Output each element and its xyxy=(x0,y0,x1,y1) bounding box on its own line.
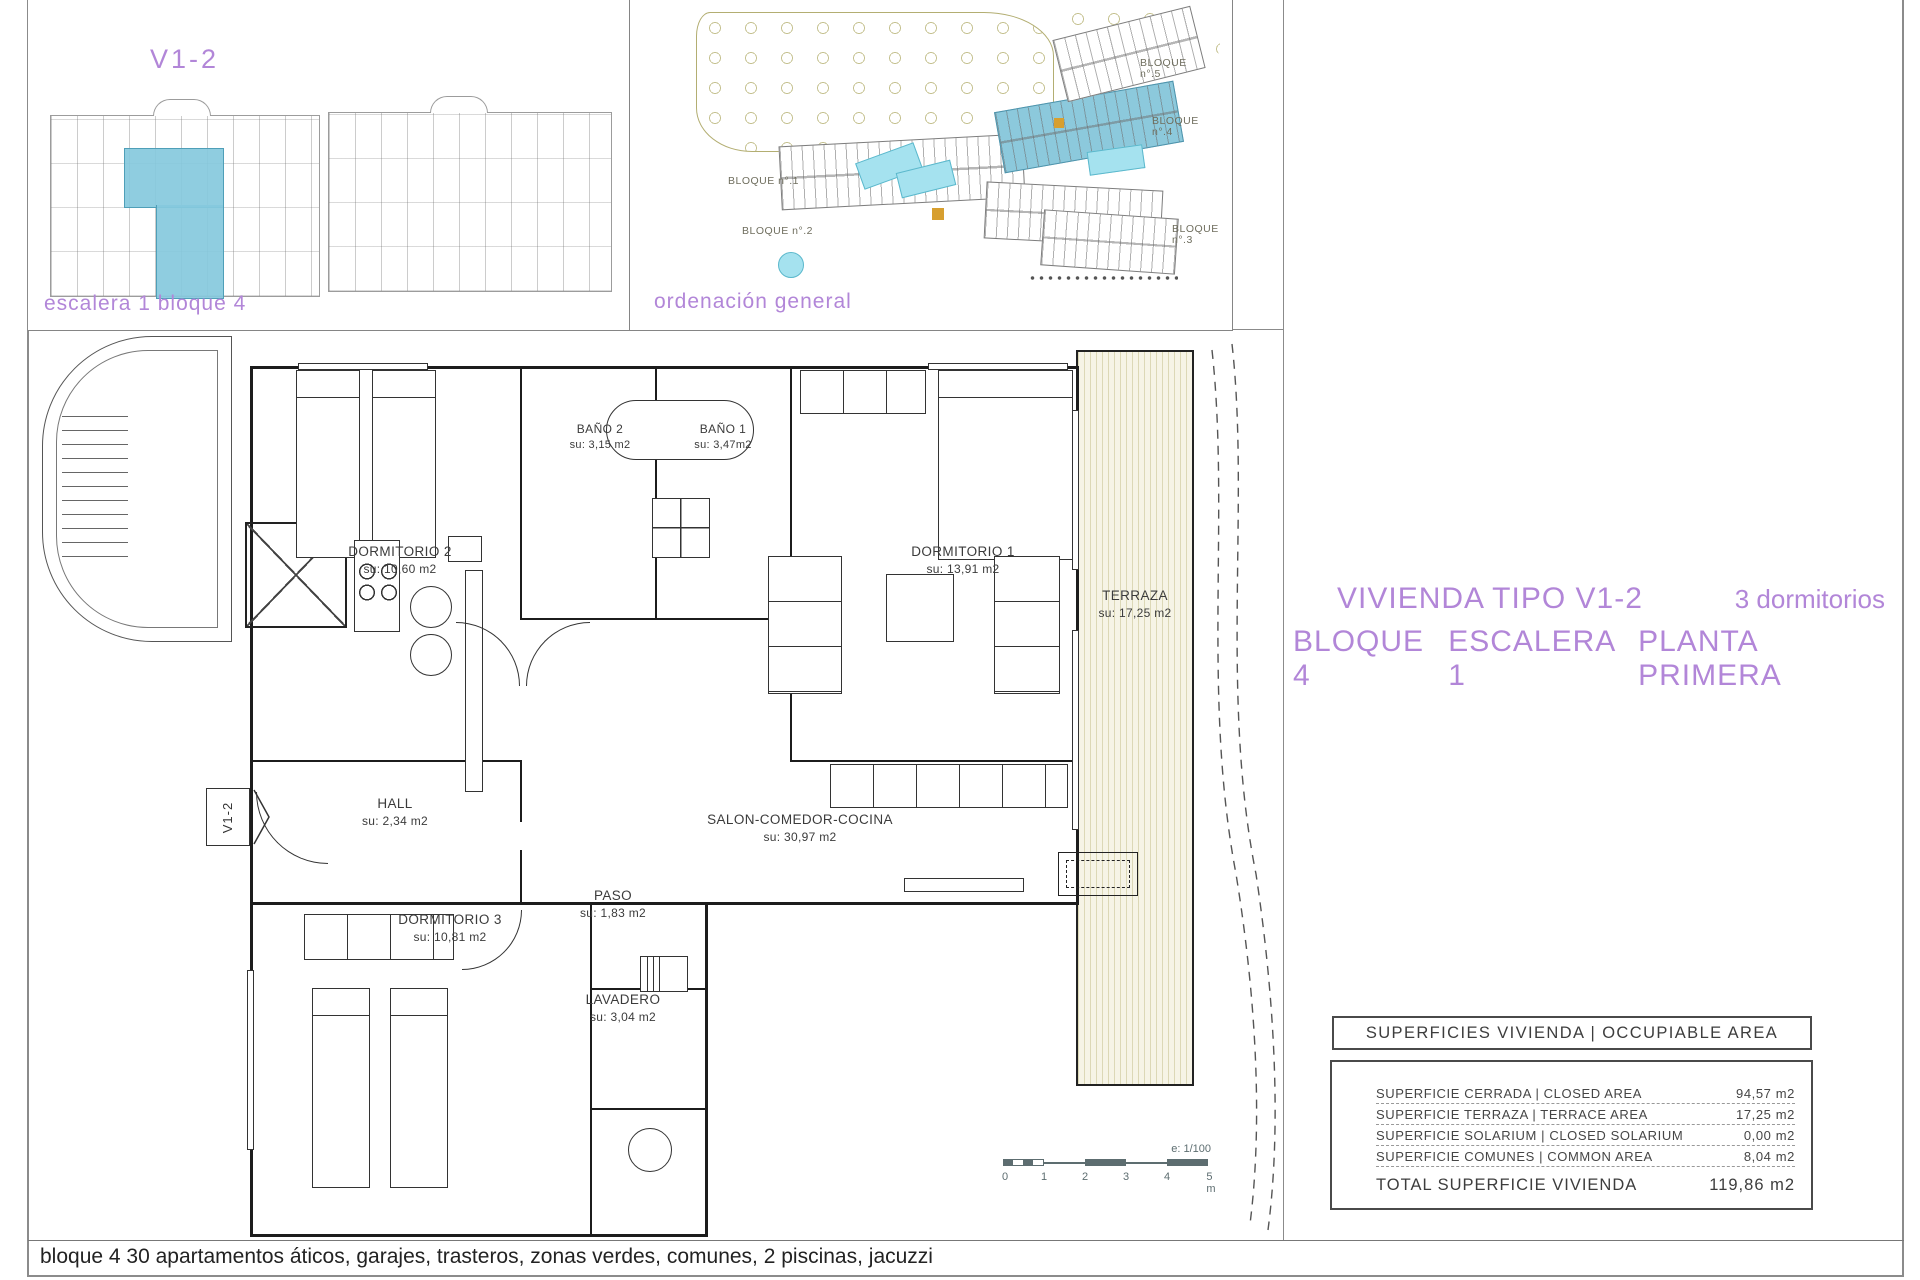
door-arc xyxy=(456,622,520,686)
row-value: 17,25 m2 xyxy=(1736,1107,1795,1122)
wall xyxy=(520,618,792,620)
site-label-bloque5: BLOQUE n°.5 xyxy=(1140,58,1192,80)
room-label-bano1: BAÑO 1 su: 3,47m2 xyxy=(663,422,783,451)
sofa-icon xyxy=(994,556,1060,694)
jacuzzi-icon xyxy=(1054,118,1064,128)
room-area: su: 13,91 m2 xyxy=(873,562,1053,576)
room-name: BAÑO 1 xyxy=(663,422,783,436)
room-label-lavadero: LAVADERO su: 3,04 m2 xyxy=(558,992,688,1024)
row-value: 0,00 m2 xyxy=(1744,1128,1795,1143)
panel-key-plan: V1-2 escalera 1 bloque 4 xyxy=(28,0,630,331)
room-label-paso: PASO su: 1,83 m2 xyxy=(548,888,678,920)
stair-treads xyxy=(62,416,128,568)
area-table: SUPERFICIE CERRADA | CLOSED AREA 94,57 m… xyxy=(1330,1060,1813,1210)
room-label-dormitorio2: DORMITORIO 2 su: 10,60 m2 xyxy=(310,544,490,576)
title-line2: BLOQUE 4 ESCALERA 1 PLANTA PRIMERA xyxy=(1293,625,1905,693)
table-icon xyxy=(410,586,452,628)
room-name: TERRAZA xyxy=(1060,588,1210,603)
total-value: 119,86 m2 xyxy=(1709,1176,1795,1195)
table-icon xyxy=(410,634,452,676)
room-name: PASO xyxy=(548,888,678,903)
room-label-dormitorio3: DORMITORIO 3 su: 10,81 m2 xyxy=(360,912,540,944)
room-name: DORMITORIO 2 xyxy=(310,544,490,559)
room-name: DORMITORIO 3 xyxy=(360,912,540,927)
room-name: HALL xyxy=(335,796,455,811)
table-row: SUPERFICIE TERRAZA | TERRACE AREA 17,25 … xyxy=(1376,1104,1795,1125)
key-caption: escalera 1 bloque 4 xyxy=(44,292,246,316)
wall xyxy=(705,905,708,1237)
room-area: su: 3,47m2 xyxy=(663,439,783,451)
title-bloque: BLOQUE 4 xyxy=(1293,625,1448,693)
room-label-dormitorio1: DORMITORIO 1 su: 13,91 m2 xyxy=(873,544,1053,576)
cabinet-icon xyxy=(830,764,1068,808)
room-name: LAVADERO xyxy=(558,992,688,1007)
site-label-bloque3: BLOQUE n°.3 xyxy=(1172,224,1224,246)
tv-bench-icon xyxy=(904,878,1024,892)
row-label: SUPERFICIE COMUNES | COMMON AREA xyxy=(1376,1149,1653,1164)
jacuzzi-icon xyxy=(932,208,944,220)
parking-strip xyxy=(1028,274,1178,282)
footer-strip: bloque 4 30 apartamentos áticos, garajes… xyxy=(28,1240,1904,1277)
room-area: su: 2,34 m2 xyxy=(335,814,455,828)
row-label: SUPERFICIE CERRADA | CLOSED AREA xyxy=(1376,1086,1642,1101)
wardrobe-icon xyxy=(800,370,926,414)
stair-bump-icon xyxy=(153,99,211,116)
window xyxy=(1072,410,1079,570)
window xyxy=(928,363,1068,370)
plan-sheet: V1-2 escalera 1 bloque 4 BLOQUE n°.1 BLO… xyxy=(0,0,1920,1280)
shower-icon xyxy=(652,498,710,558)
unit-marker: V1-2 xyxy=(206,788,250,846)
unit-marker-label: V1-2 xyxy=(221,801,236,832)
bed-icon xyxy=(390,988,448,1188)
table-row: SUPERFICIE SOLARIUM | CLOSED SOLARIUM 0,… xyxy=(1376,1125,1795,1146)
title-dormitorios: 3 dormitorios xyxy=(1735,584,1885,615)
row-label: SUPERFICIE TERRAZA | TERRACE AREA xyxy=(1376,1107,1648,1122)
bed-icon xyxy=(372,370,436,558)
stair-bump-icon xyxy=(430,96,488,113)
window xyxy=(247,970,254,1150)
footer-text: bloque 4 30 apartamentos áticos, garajes… xyxy=(40,1245,933,1269)
bed-icon xyxy=(296,370,360,558)
boiler-icon xyxy=(628,1128,672,1172)
row-value: 8,04 m2 xyxy=(1744,1149,1795,1164)
bed-icon xyxy=(312,988,370,1188)
table-row: SUPERFICIE CERRADA | CLOSED AREA 94,57 m… xyxy=(1376,1083,1795,1104)
wall xyxy=(790,760,1079,762)
room-label-hall: HALL su: 2,34 m2 xyxy=(335,796,455,828)
room-name: DORMITORIO 1 xyxy=(873,544,1053,559)
marker-arrow-icon xyxy=(252,788,274,846)
room-name: SALON-COMEDOR-COCINA xyxy=(678,812,922,827)
building-wing-right xyxy=(328,112,612,292)
wall xyxy=(590,1108,706,1110)
room-area: su: 10,60 m2 xyxy=(310,562,490,576)
plot-boundary-lines xyxy=(1194,334,1286,1236)
wall xyxy=(520,850,522,905)
row-value: 94,57 m2 xyxy=(1736,1086,1795,1101)
title-planta: PLANTA PRIMERA xyxy=(1638,625,1905,693)
room-area: su: 30,97 m2 xyxy=(678,830,922,844)
site-caption: ordenación general xyxy=(654,290,852,314)
round-pool-icon xyxy=(778,252,804,278)
key-unit-title: V1-2 xyxy=(150,44,219,75)
room-area: su: 3,15 m2 xyxy=(540,439,660,451)
sofa-icon xyxy=(768,556,842,694)
area-table-header: SUPERFICIES VIVIENDA | OCCUPIABLE AREA xyxy=(1332,1016,1812,1050)
title-escalera: ESCALERA 1 xyxy=(1448,625,1638,693)
wall xyxy=(250,1234,708,1237)
title-vivienda-tipo: VIVIENDA TIPO V1-2 xyxy=(1337,582,1643,616)
room-area: su: 17,25 m2 xyxy=(1060,606,1210,620)
site-label-bloque1: BLOQUE n°.1 xyxy=(728,176,799,187)
row-label: SUPERFICIE SOLARIUM | CLOSED SOLARIUM xyxy=(1376,1128,1683,1143)
wall xyxy=(520,760,522,822)
ac-unit-box xyxy=(1058,852,1138,896)
building-bloque-3 xyxy=(1040,209,1179,274)
title-block: VIVIENDA TIPO V1-2 3 dormitorios BLOQUE … xyxy=(1293,582,1905,693)
double-bed-icon xyxy=(938,370,1073,560)
terrace-area xyxy=(1076,350,1194,1086)
table-total-row: TOTAL SUPERFICIE VIVIENDA 119,86 m2 xyxy=(1376,1176,1795,1195)
room-area: su: 3,04 m2 xyxy=(558,1010,688,1024)
room-area: su: 1,83 m2 xyxy=(548,906,678,920)
table-row: SUPERFICIE COMUNES | COMMON AREA 8,04 m2 xyxy=(1376,1146,1795,1167)
ac-unit-dashed xyxy=(1066,860,1130,888)
door-arc xyxy=(526,622,590,686)
window xyxy=(298,363,428,370)
washer-icon xyxy=(640,956,688,992)
room-label-terraza: TERRAZA su: 17,25 m2 xyxy=(1060,588,1210,620)
room-label-bano2: BAÑO 2 su: 3,15 m2 xyxy=(540,422,660,451)
highlighted-unit-upper xyxy=(124,148,224,208)
highlighted-unit-lower xyxy=(156,205,224,299)
total-label: TOTAL SUPERFICIE VIVIENDA xyxy=(1376,1176,1637,1195)
title-line1: VIVIENDA TIPO V1-2 3 dormitorios xyxy=(1293,582,1905,616)
window xyxy=(1072,630,1079,830)
room-area: su: 10,81 m2 xyxy=(360,930,540,944)
panel-site-plan: BLOQUE n°.1 BLOQUE n°.2 BLOQUE n°.3 BLOQ… xyxy=(630,0,1233,331)
wall xyxy=(520,366,522,620)
room-name: BAÑO 2 xyxy=(540,422,660,436)
coffee-table-icon xyxy=(886,574,954,642)
site-label-bloque4: BLOQUE n°.4 xyxy=(1152,116,1204,138)
site-label-bloque2: BLOQUE n°.2 xyxy=(742,226,813,237)
room-label-salon: SALON-COMEDOR-COCINA su: 30,97 m2 xyxy=(678,812,922,844)
wall xyxy=(590,905,592,1235)
floor-plan: V1-2 DORMITORIO 2 su: 10,60 m2 BAÑO 2 su… xyxy=(28,330,1283,1240)
